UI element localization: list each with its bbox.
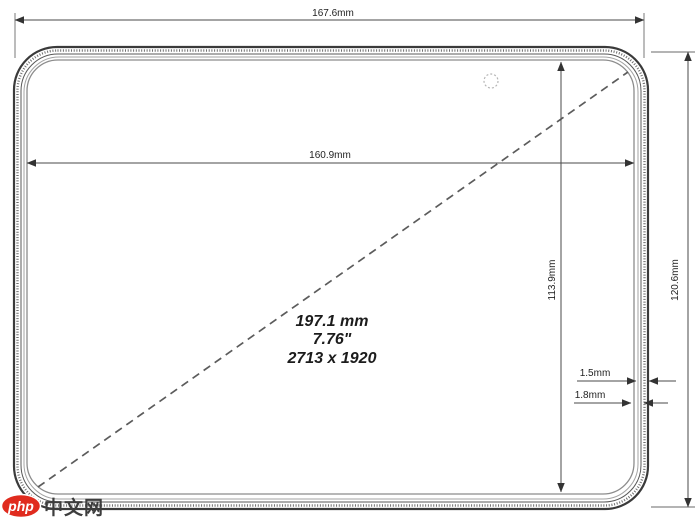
overall-width-label: 167.6mm [312, 8, 354, 19]
diagonal-inches-label: 7.76" [313, 331, 352, 348]
tablet-dimension-drawing: 167.6mm 160.9mm 113.9mm 120.6mm 1.5mm 1.… [0, 0, 700, 519]
edge-1-8-label: 1.8mm [575, 390, 606, 401]
watermark: php 中文网 [2, 495, 105, 519]
screen-outline [27, 60, 634, 494]
display-width-label: 160.9mm [309, 150, 351, 161]
diagonal-mm-label: 197.1 mm [296, 313, 369, 330]
front-camera-icon [484, 74, 498, 88]
edge-1-5-label: 1.5mm [580, 368, 611, 379]
resolution-label: 2713 x 1920 [287, 350, 377, 367]
dim-display-width: 160.9mm [27, 150, 634, 163]
overall-height-label: 120.6mm [670, 259, 681, 301]
drawing-canvas: 167.6mm 160.9mm 113.9mm 120.6mm 1.5mm 1.… [0, 0, 700, 519]
display-height-label: 113.9mm [547, 260, 558, 301]
diagonal-annotation: 197.1 mm 7.76" 2713 x 1920 [287, 313, 377, 367]
screen-diagonal-line [38, 72, 628, 487]
dim-overall-height: 120.6mm [651, 52, 695, 507]
dim-edge-1-8: 1.8mm [574, 390, 668, 403]
watermark-cn-text: 中文网 [44, 496, 104, 519]
php-logo-text: php [7, 498, 34, 514]
dim-edge-1-5: 1.5mm [577, 368, 676, 381]
